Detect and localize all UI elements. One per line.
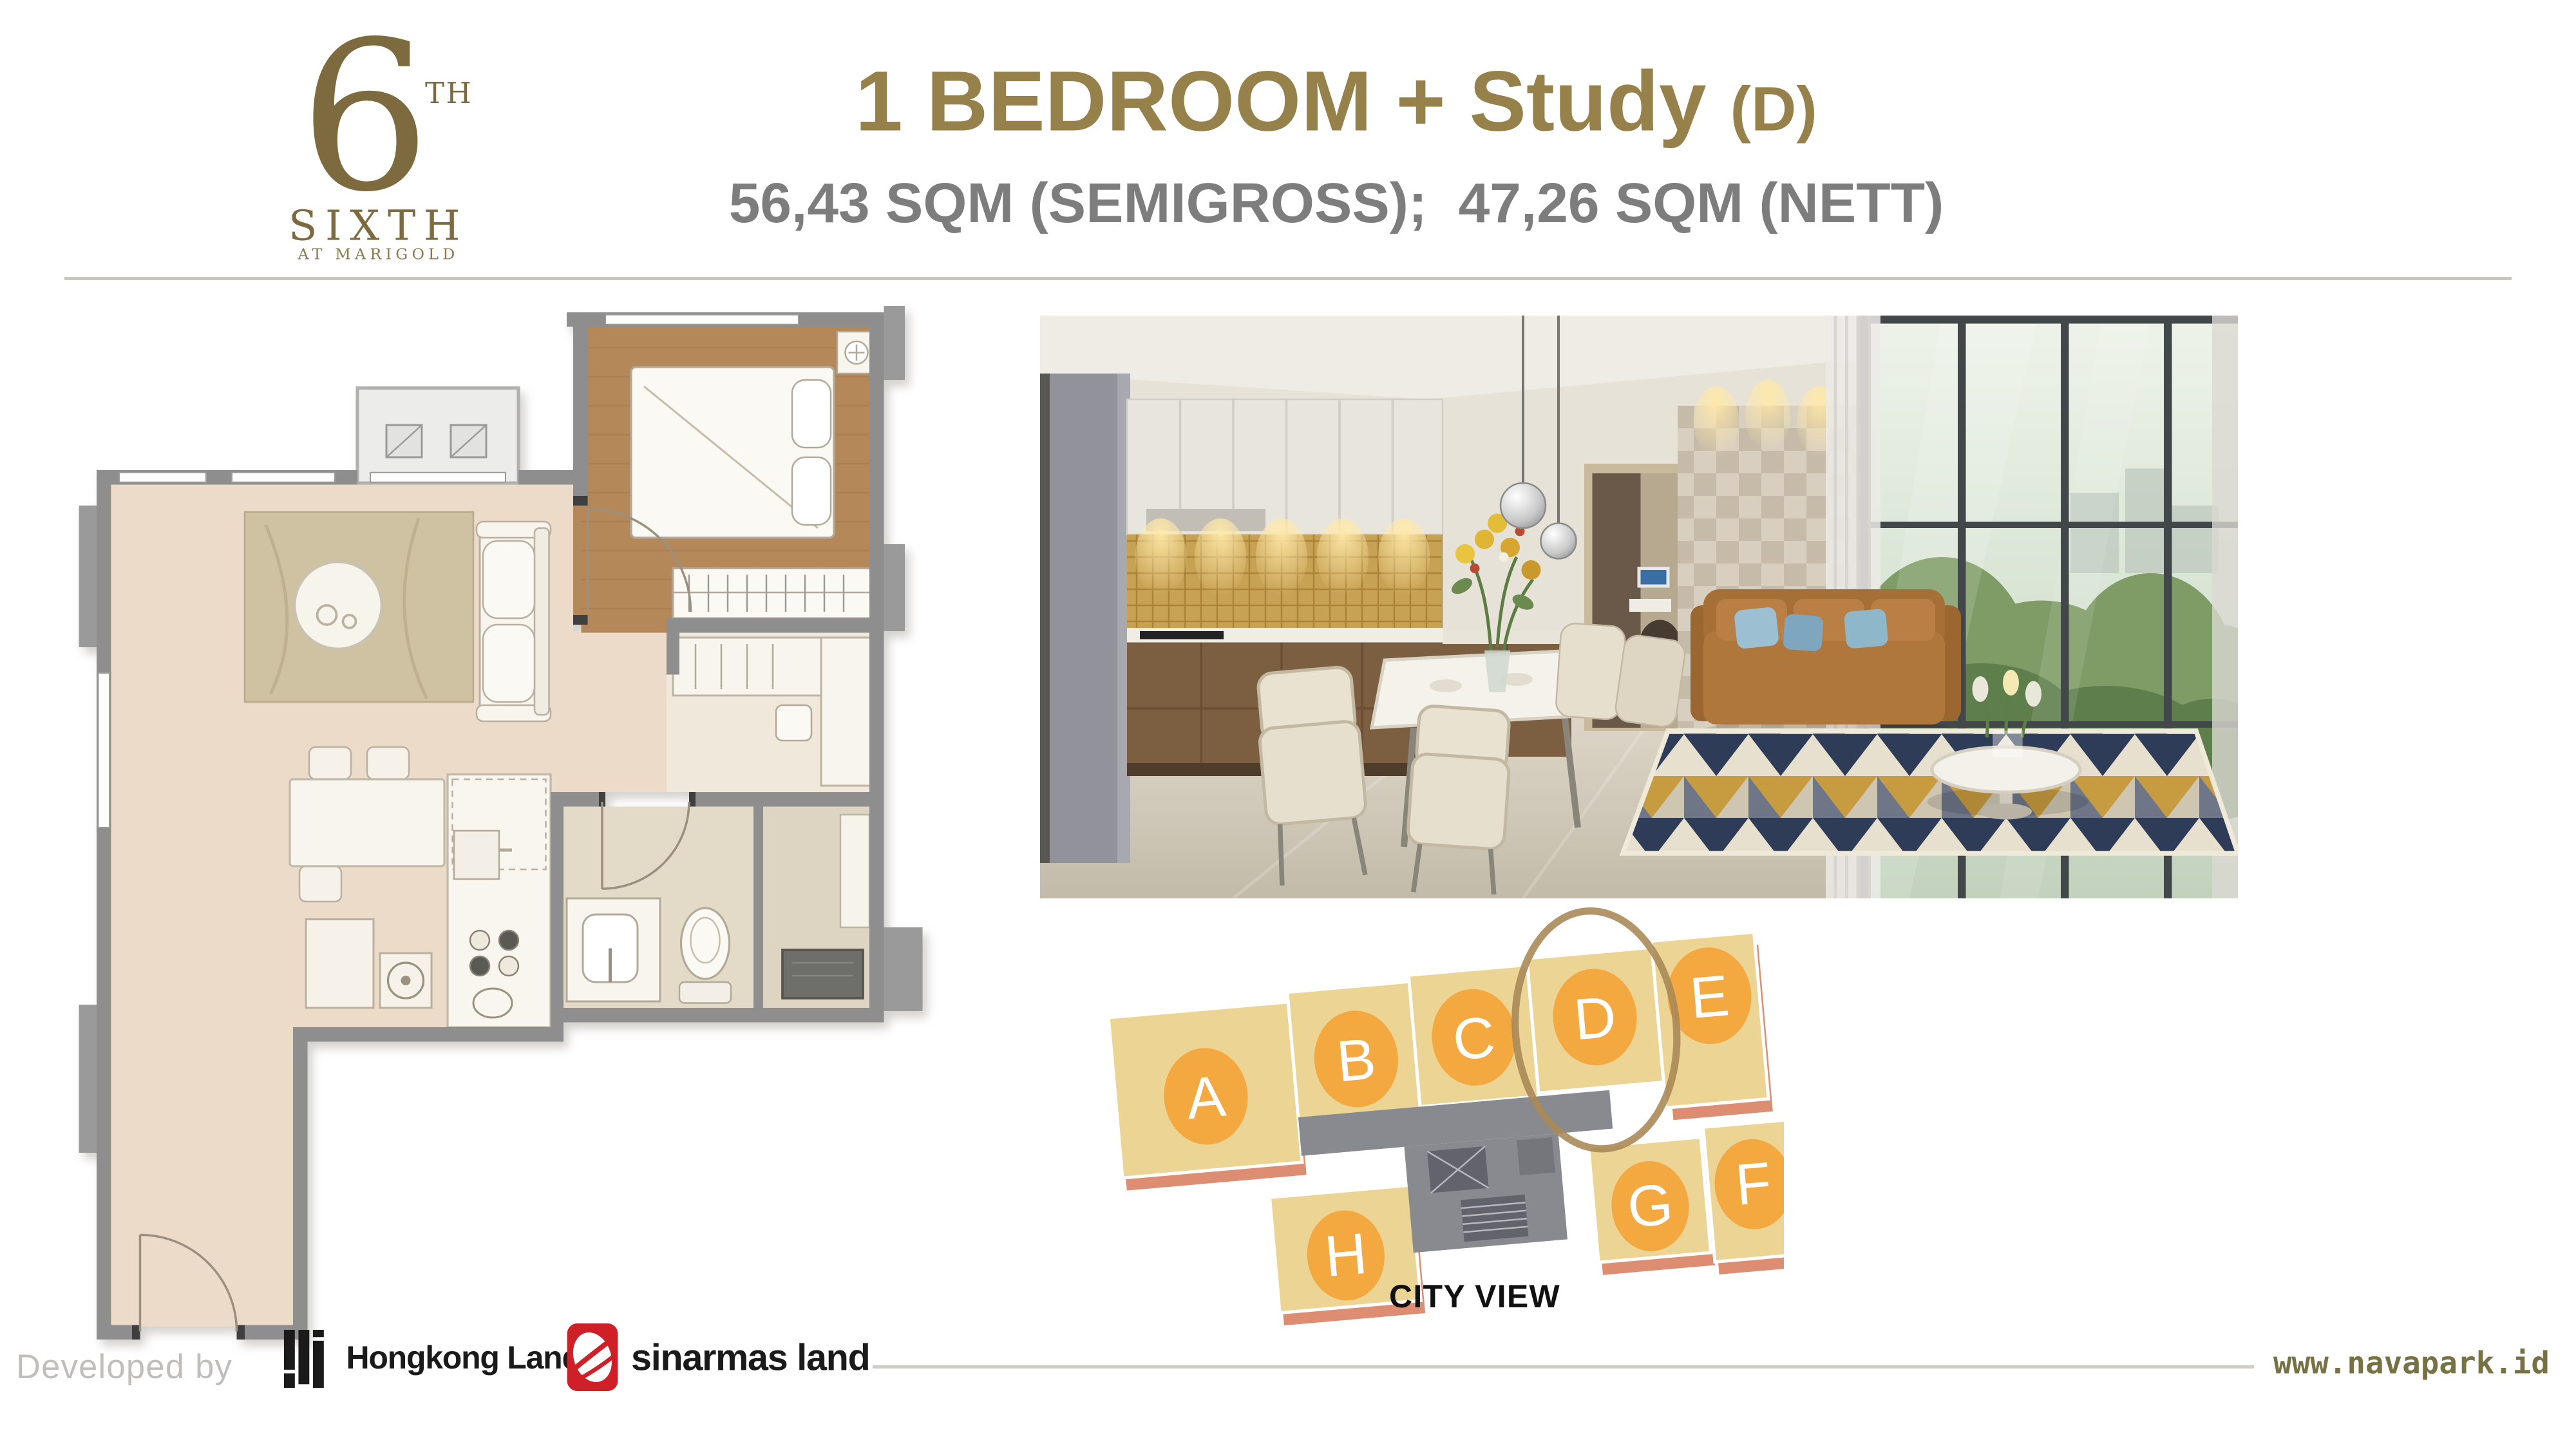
- website-url: www.navapark.id: [2273, 1346, 2550, 1381]
- unit-label-a: A: [1184, 1064, 1228, 1132]
- brochure-slide: 6 TH SIXTH AT MARIGOLD 1 BEDROOM + Study…: [0, 0, 2576, 1449]
- unit-label-d: D: [1571, 985, 1618, 1052]
- page-title-unit: (D): [1730, 76, 1817, 146]
- sinarmas-land-wordmark: sinarmas land: [631, 1336, 869, 1379]
- key-plan-drawing: A B C D E F G H CITY VIEW: [1108, 895, 1784, 1330]
- logo-name: SIXTH: [258, 203, 499, 251]
- hongkong-land-mark-icon: [283, 1330, 332, 1388]
- sinarmas-land-mark-icon: [567, 1323, 618, 1391]
- page-title: 1 BEDROOM + Study (D): [612, 58, 2061, 147]
- living-area-furniture: [245, 512, 551, 721]
- unit-label-e: E: [1687, 963, 1732, 1031]
- hongkong-land-wordmark: Hongkong Land: [346, 1340, 581, 1378]
- city-view-caption: CITY VIEW: [1389, 1278, 1560, 1314]
- logo-ordinal: TH: [425, 77, 473, 111]
- interior-render-drawing: [1040, 316, 2238, 898]
- sixth-at-marigold-logo: 6 TH SIXTH AT MARIGOLD: [258, 29, 499, 270]
- interior-render-photo: [1040, 316, 2238, 898]
- area-rug: [1623, 731, 2238, 853]
- floor-plan-drawing: [64, 299, 966, 1362]
- area-subtitle: 56,43 SQM (SEMIGROSS); 47,26 SQM (NETT): [612, 172, 2061, 236]
- balcony-ac-ledge: [357, 388, 518, 484]
- logo-tagline: AT MARIGOLD: [258, 247, 499, 265]
- unit-label-c: C: [1450, 1005, 1497, 1073]
- unit-key-plan: A B C D E F G H CITY VIEW: [1108, 895, 1784, 1330]
- unit-label-g: G: [1625, 1172, 1675, 1240]
- developed-by-label: Developed by: [16, 1349, 232, 1388]
- logo-numeral: 6: [299, 16, 431, 222]
- floor-plan-figure: [64, 299, 966, 1362]
- unit-label-f: F: [1733, 1151, 1774, 1218]
- title-block: 1 BEDROOM + Study (D) 56,43 SQM (SEMIGRO…: [612, 58, 2061, 236]
- sinarmas-land-logo: sinarmas land: [567, 1323, 869, 1391]
- header-divider: [64, 277, 2512, 280]
- unit-label-h: H: [1322, 1222, 1369, 1289]
- page-title-text: 1 BEDROOM + Study: [855, 55, 1707, 150]
- hongkong-land-logo: Hongkong Land: [283, 1330, 581, 1388]
- footer-divider: [873, 1365, 2254, 1368]
- unit-label-b: B: [1334, 1027, 1379, 1094]
